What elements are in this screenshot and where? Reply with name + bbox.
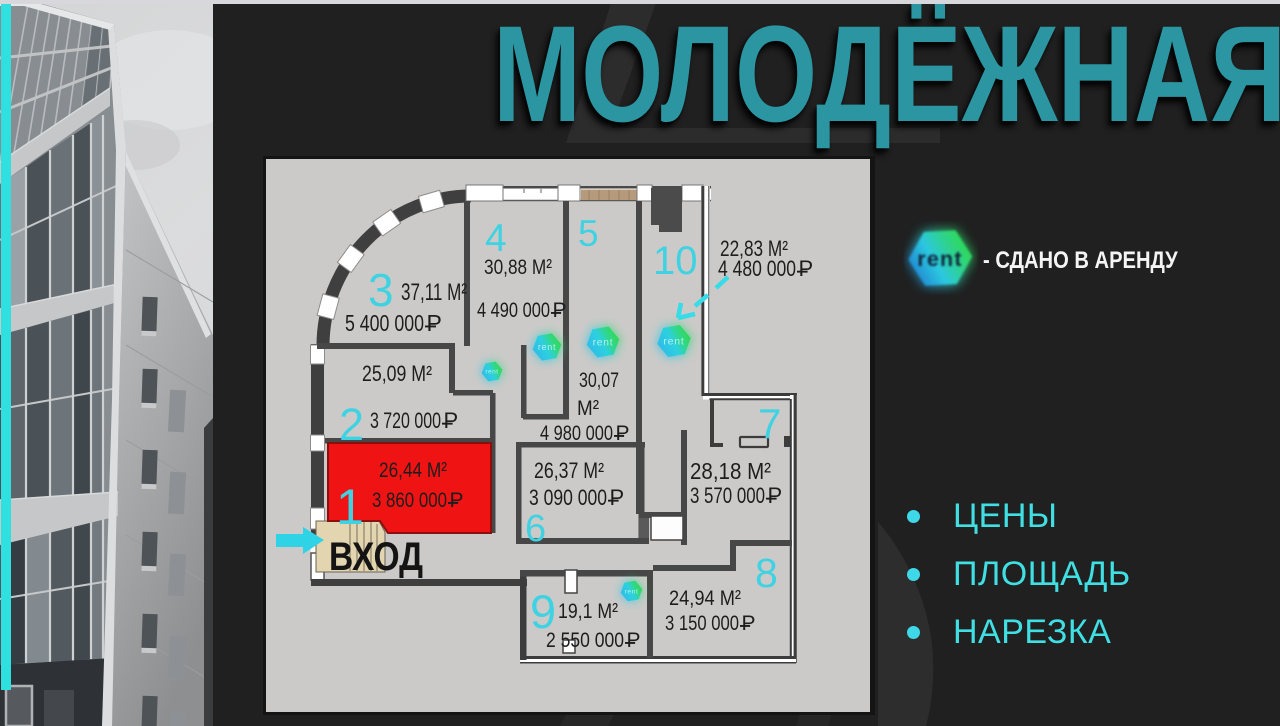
svg-text:26,44 М²: 26,44 М² bbox=[379, 459, 447, 482]
svg-text:Р: Р bbox=[627, 629, 641, 652]
svg-text:3 860 000: 3 860 000 bbox=[372, 489, 447, 512]
svg-text:rent: rent bbox=[625, 588, 639, 595]
svg-text:Р: Р bbox=[742, 612, 756, 635]
svg-text:rent: rent bbox=[593, 338, 614, 349]
svg-text:4: 4 bbox=[485, 217, 507, 260]
svg-text:Р: Р bbox=[799, 256, 814, 281]
svg-text:М²: М² bbox=[577, 397, 599, 420]
svg-text:19,1 М²: 19,1 М² bbox=[558, 600, 618, 623]
svg-text:2 550 000: 2 550 000 bbox=[546, 629, 624, 652]
svg-text:30,07: 30,07 bbox=[579, 369, 619, 392]
svg-text:3 150 000: 3 150 000 bbox=[665, 612, 739, 635]
svg-text:26,37 М²: 26,37 М² bbox=[534, 458, 604, 483]
svg-text:7: 7 bbox=[758, 400, 781, 447]
svg-text:3: 3 bbox=[368, 264, 394, 316]
svg-text:Р: Р bbox=[444, 408, 459, 433]
svg-text:5: 5 bbox=[578, 213, 599, 254]
svg-text:4 480 000: 4 480 000 bbox=[718, 256, 796, 281]
svg-text:37,11 М²: 37,11 М² bbox=[401, 279, 467, 306]
svg-text:24,94 М²: 24,94 М² bbox=[669, 587, 741, 610]
svg-text:2: 2 bbox=[339, 399, 364, 450]
svg-text:10: 10 bbox=[653, 239, 698, 283]
svg-text:ВХОД: ВХОД bbox=[329, 535, 423, 579]
svg-text:9: 9 bbox=[530, 585, 556, 638]
svg-text:3 570 000: 3 570 000 bbox=[690, 483, 765, 508]
svg-text:rent: rent bbox=[663, 336, 684, 348]
svg-text:3 090 000: 3 090 000 bbox=[529, 485, 607, 510]
svg-text:Р: Р bbox=[553, 299, 567, 322]
svg-text:rent: rent bbox=[538, 342, 556, 352]
svg-text:Р: Р bbox=[768, 483, 783, 508]
svg-text:8: 8 bbox=[755, 550, 778, 596]
svg-text:28,18 М²: 28,18 М² bbox=[690, 458, 771, 484]
svg-text:rent: rent bbox=[917, 247, 962, 271]
svg-text:Р: Р bbox=[427, 310, 442, 336]
svg-text:3 720 000: 3 720 000 bbox=[370, 408, 441, 433]
svg-text:Р: Р bbox=[616, 422, 630, 445]
svg-text:25,09 М²: 25,09 М² bbox=[362, 361, 432, 386]
svg-text:4 490 000: 4 490 000 bbox=[477, 299, 550, 322]
svg-text:Р: Р bbox=[450, 489, 464, 512]
svg-text:rent: rent bbox=[485, 369, 498, 376]
svg-text:4 980 000: 4 980 000 bbox=[540, 422, 613, 445]
svg-text:6: 6 bbox=[525, 508, 546, 550]
svg-text:1: 1 bbox=[336, 479, 364, 535]
svg-text:Р: Р bbox=[610, 485, 625, 510]
